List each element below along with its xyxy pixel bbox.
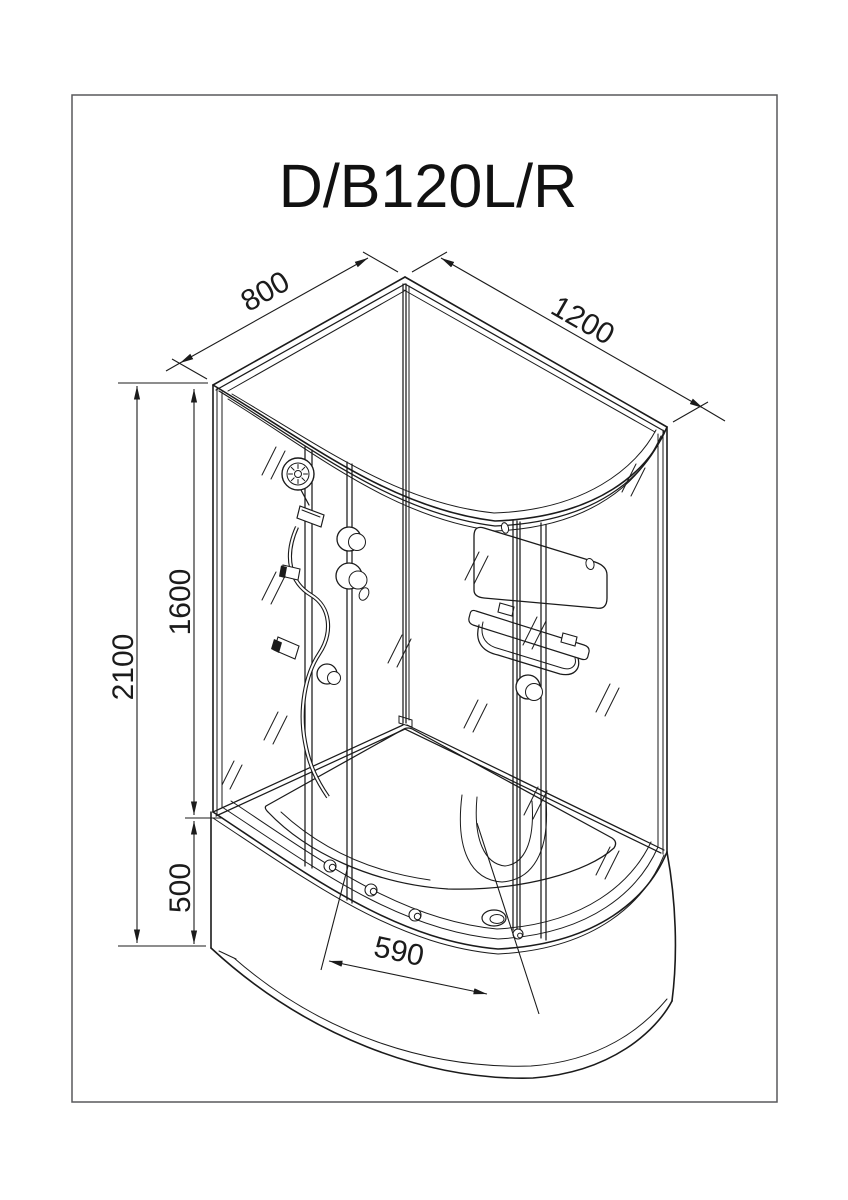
dimension-line-overshoot xyxy=(703,408,725,421)
dimension-1200: 1200 xyxy=(412,252,725,422)
roof-edge-right-inner xyxy=(405,284,664,431)
dimension-500: 500 xyxy=(164,821,197,944)
roof-top-inset-curve xyxy=(232,394,656,513)
tub-deep-section-inner xyxy=(476,797,532,866)
roller-knob-face xyxy=(526,684,543,701)
hand-shower xyxy=(282,458,324,527)
dimension-label: 590 xyxy=(371,930,427,973)
panel-hole-left xyxy=(500,522,509,534)
body-jet-left xyxy=(317,664,341,685)
faucet-knobs xyxy=(336,527,371,602)
back-corner-post xyxy=(403,284,406,723)
tub-outline xyxy=(265,728,615,889)
drawing-page: D/B120L/R xyxy=(0,0,848,1200)
shelf-tab-left xyxy=(498,603,514,616)
hydro-jet-3 xyxy=(409,909,421,921)
sliding-door-rails xyxy=(305,447,546,940)
door-roller-knob xyxy=(516,675,543,701)
dimension-2100: 2100 xyxy=(107,383,208,946)
shower-cabin xyxy=(211,277,675,1078)
right-corner-post-inner xyxy=(658,430,663,854)
extension-lines xyxy=(172,252,398,379)
dimension-label: 2100 xyxy=(107,634,140,701)
drain xyxy=(482,910,506,926)
hydro-jet-1 xyxy=(324,860,336,872)
tray-rim-outer2 xyxy=(213,818,664,954)
apron-right-edge xyxy=(667,852,675,1001)
dimension-1600: 1600 xyxy=(164,389,223,818)
dimensions: 800 1200 2100 1600 500 590 xyxy=(107,252,725,1014)
body-jet-left-face xyxy=(328,672,341,685)
dimension-label: 800 xyxy=(235,265,295,318)
dimension-label: 1600 xyxy=(164,569,197,636)
apron-panel-cut xyxy=(219,951,667,1066)
dimension-label: 500 xyxy=(164,863,197,913)
hydro-jet-2 xyxy=(365,884,377,896)
dimension-line-overshoot xyxy=(166,363,180,371)
faucet-knob-top-face xyxy=(349,534,366,551)
left-corner-post-inner xyxy=(217,388,222,814)
wall-bottom-edge-left xyxy=(213,725,405,816)
dimension-label: 1200 xyxy=(546,290,620,352)
roof-edge-right xyxy=(405,277,667,427)
shelf xyxy=(469,603,589,675)
tub-seat-contour xyxy=(281,812,430,880)
roof-front-curve-inner xyxy=(219,391,664,526)
extension-lines xyxy=(412,252,708,422)
wall-bottom-edge-right xyxy=(405,725,664,853)
model-title: D/B120L/R xyxy=(279,152,577,220)
faucet-knob-bottom-face xyxy=(349,571,367,589)
tub-deep-section xyxy=(460,795,546,882)
shower-cabin-technical-drawing: D/B120L/R xyxy=(0,0,848,1200)
tray-rim-outer xyxy=(213,812,667,949)
